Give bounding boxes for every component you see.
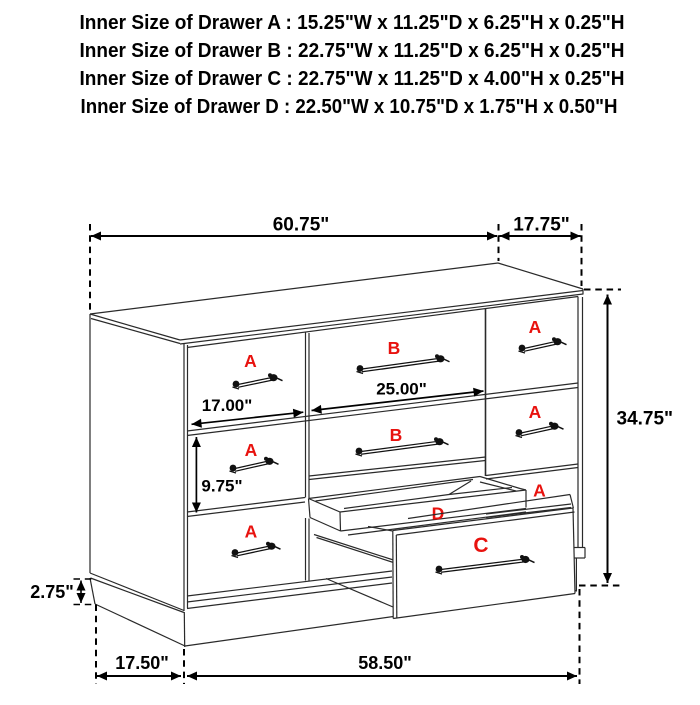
svg-text:25.00": 25.00": [376, 380, 427, 399]
svg-text:17.00": 17.00": [202, 396, 253, 415]
svg-text:B: B: [388, 338, 401, 358]
svg-text:A: A: [529, 317, 542, 337]
svg-text:Inner Size of Drawer C : 22.75: Inner Size of Drawer C : 22.75"W x 11.25…: [80, 68, 625, 90]
svg-text:B: B: [390, 425, 403, 445]
svg-text:60.75": 60.75": [273, 215, 330, 236]
svg-text:34.75": 34.75": [617, 409, 674, 430]
svg-text:2.75": 2.75": [30, 582, 74, 602]
svg-text:Inner Size of Drawer B : 22.75: Inner Size of Drawer B : 22.75"W x 11.25…: [80, 40, 625, 62]
svg-text:A: A: [244, 351, 257, 371]
svg-text:17.75": 17.75": [513, 215, 570, 236]
svg-text:A: A: [533, 481, 546, 501]
svg-text:9.75": 9.75": [201, 477, 242, 496]
svg-text:A: A: [245, 522, 258, 542]
svg-text:A: A: [245, 440, 258, 460]
svg-text:58.50": 58.50": [358, 653, 412, 673]
svg-text:Inner Size of Drawer D : 22.5: Inner Size of Drawer D : 22.50"W x 10.75…: [81, 96, 618, 118]
svg-text:C: C: [473, 534, 488, 557]
svg-text:17.50": 17.50": [115, 653, 169, 673]
svg-text:A: A: [529, 402, 542, 422]
svg-text:Inner Size of Drawer A : 15.25: Inner Size of Drawer A : 15.25"W x 11.25…: [80, 12, 625, 34]
